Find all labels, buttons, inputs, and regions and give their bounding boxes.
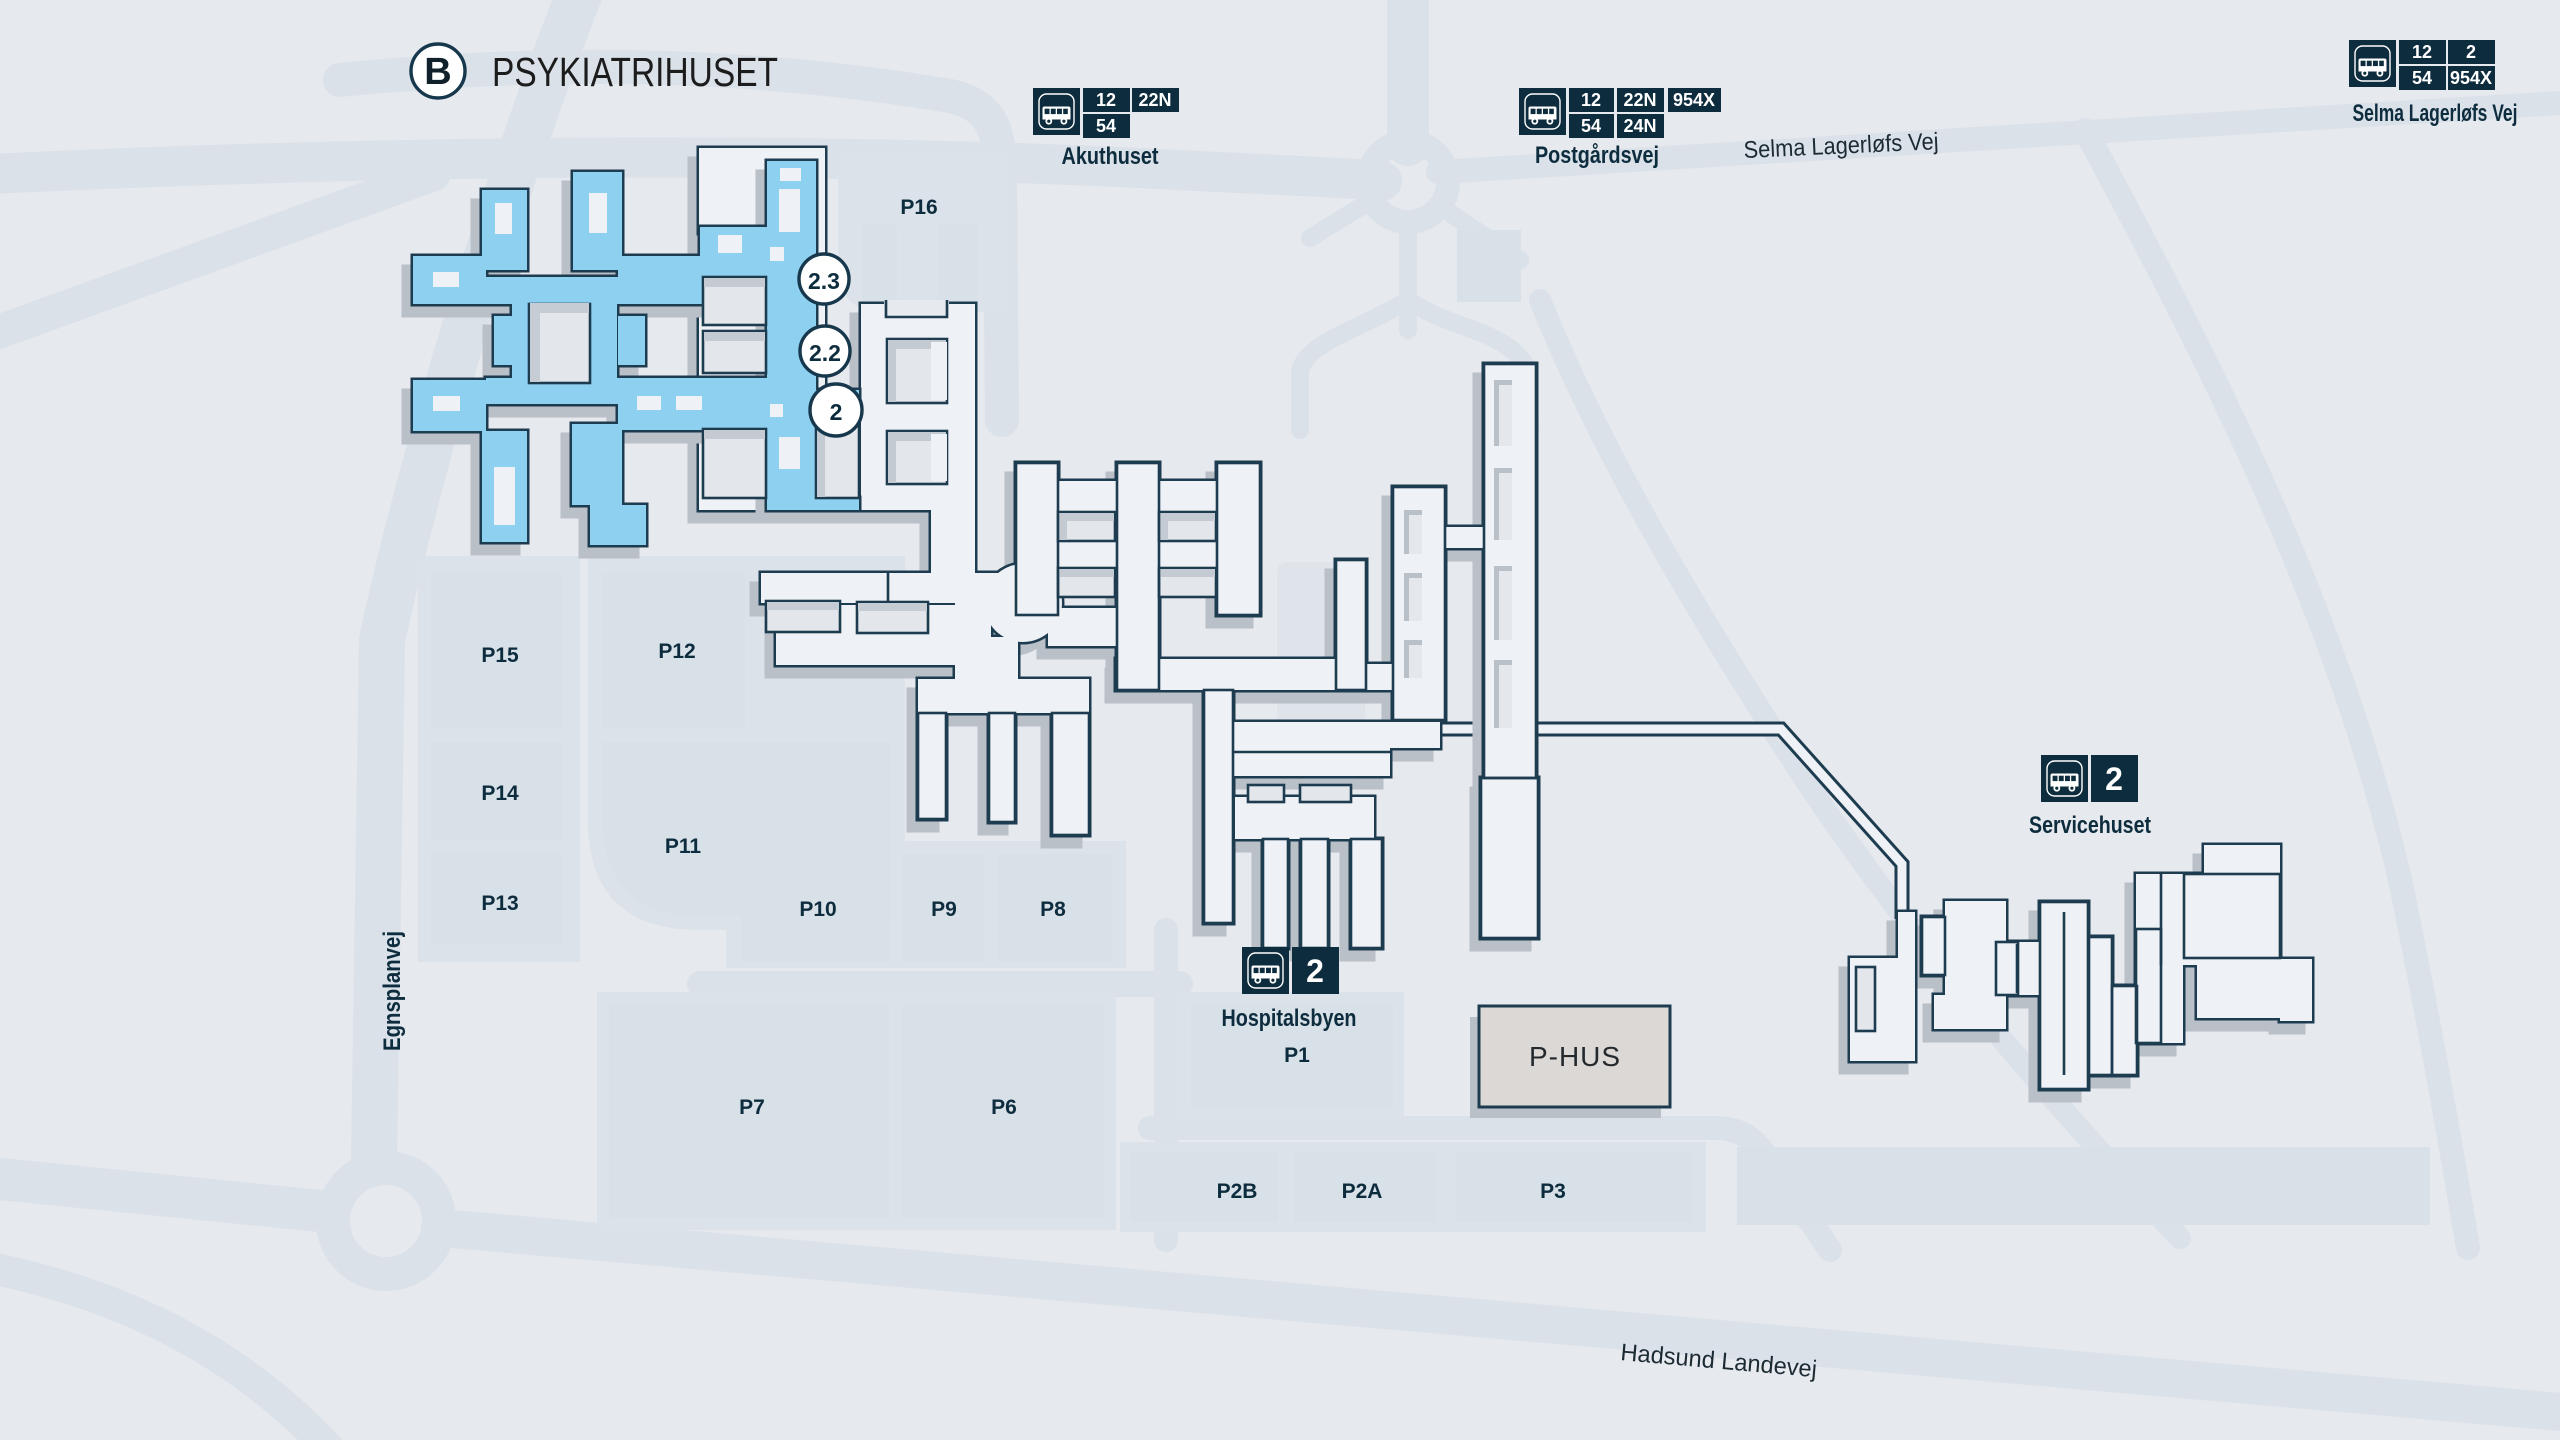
svg-text:22N: 22N — [1623, 90, 1656, 110]
svg-text:P-HUS: P-HUS — [1529, 1041, 1621, 1072]
svg-text:2: 2 — [1306, 953, 1324, 989]
svg-text:P2B: P2B — [1217, 1180, 1258, 1203]
svg-text:54: 54 — [2412, 68, 2432, 88]
svg-text:2.3: 2.3 — [808, 268, 840, 294]
svg-text:Akuthuset: Akuthuset — [1062, 143, 1159, 170]
svg-text:12: 12 — [2412, 42, 2432, 62]
svg-text:24N: 24N — [1623, 116, 1656, 136]
svg-text:P13: P13 — [481, 892, 518, 915]
svg-text:P1: P1 — [1284, 1044, 1310, 1067]
svg-text:P16: P16 — [900, 196, 937, 219]
svg-text:Selma Lagerløfs Vej: Selma Lagerløfs Vej — [2353, 100, 2518, 127]
svg-text:P11: P11 — [665, 835, 702, 858]
svg-text:2.2: 2.2 — [809, 340, 841, 366]
svg-text:P10: P10 — [799, 898, 836, 921]
svg-text:Postgårdsvej: Postgårdsvej — [1535, 142, 1659, 169]
svg-text:54: 54 — [1581, 116, 1601, 136]
svg-text:P3: P3 — [1540, 1180, 1566, 1203]
svg-text:P8: P8 — [1040, 898, 1066, 921]
svg-text:P9: P9 — [931, 898, 957, 921]
svg-text:Egnsplanvej: Egnsplanvej — [379, 931, 406, 1051]
svg-text:P15: P15 — [481, 644, 519, 667]
svg-text:PSYKIATRIHUSET: PSYKIATRIHUSET — [492, 49, 778, 95]
svg-text:12: 12 — [1581, 90, 1601, 110]
svg-text:P6: P6 — [991, 1096, 1017, 1119]
svg-text:P2A: P2A — [1342, 1180, 1383, 1203]
svg-text:2: 2 — [2466, 42, 2476, 62]
svg-text:B: B — [424, 51, 451, 93]
svg-text:Hospitalsbyen: Hospitalsbyen — [1222, 1005, 1357, 1032]
svg-text:Servicehuset: Servicehuset — [2029, 812, 2151, 839]
svg-text:22N: 22N — [1138, 90, 1171, 110]
svg-text:P7: P7 — [739, 1096, 765, 1119]
svg-text:54: 54 — [1096, 116, 1116, 136]
svg-text:2: 2 — [2105, 761, 2123, 797]
svg-text:954X: 954X — [2450, 68, 2492, 88]
svg-text:12: 12 — [1096, 90, 1116, 110]
svg-text:P12: P12 — [658, 640, 695, 663]
svg-text:2: 2 — [830, 399, 843, 425]
svg-text:P14: P14 — [481, 782, 519, 805]
svg-text:954X: 954X — [1673, 90, 1715, 110]
